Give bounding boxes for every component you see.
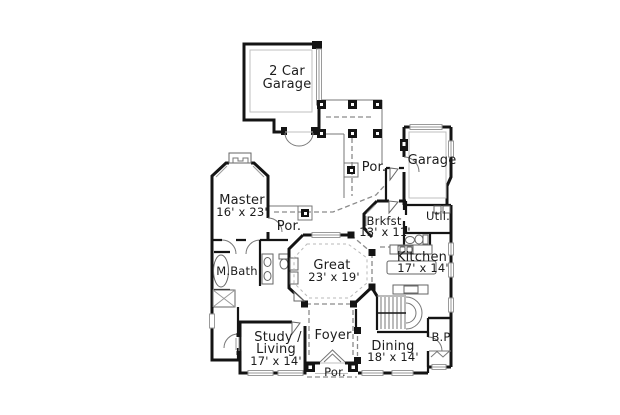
floor-plan-drawing: 2 Car Garage Master 16' x 23' Por. Por. … [0,0,620,415]
label-dining-dims: 18' x 14' [367,350,419,364]
door-swing [294,292,304,301]
door-swing [389,201,398,213]
label-kitchen-dims: 17' x 14' [397,261,449,275]
label-study-dims: 17' x 14' [250,354,302,368]
closet-bifold [431,352,449,358]
label-breakfast-dims: 13' x 11' [359,225,411,239]
vestibule [386,168,404,201]
label-walkway-porch: Por. [362,160,386,175]
label-foyer: Foyer [314,328,351,343]
label-utility: Util. [426,209,450,223]
label-front-porch: Por. [324,365,346,379]
hall-corridor [210,307,241,360]
label-detached-garage-2: Garage [263,77,312,92]
label-master-bath: M.Bath [216,264,258,278]
label-master-porch: Por. [277,219,301,234]
label-attached-garage: Garage [408,153,457,168]
room-detached-garage [244,41,322,146]
stair-rail [406,297,422,329]
entry-door-icon [320,350,345,362]
floor-plan: 2 Car Garage Master 16' x 23' Por. Por. … [0,0,620,415]
toilet-icon [423,235,428,244]
label-great-dims: 23' x 19' [308,270,360,284]
label-butlers-pantry: B.P [431,330,450,344]
range-icon [404,286,418,293]
label-master-dims: 16' x 23' [216,205,268,219]
door-swing [390,168,398,180]
